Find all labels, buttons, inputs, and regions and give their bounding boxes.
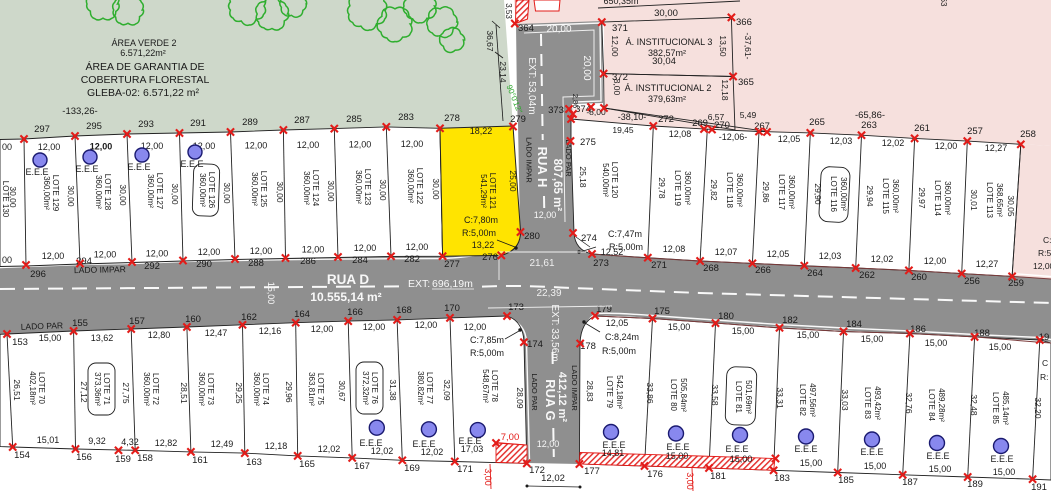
svg-text:541,29m²: 541,29m² xyxy=(479,174,488,208)
svg-text:489,28m²: 489,28m² xyxy=(937,388,946,422)
svg-text:291: 291 xyxy=(190,118,206,129)
svg-text:30,00: 30,00 xyxy=(654,8,678,19)
svg-text:284: 284 xyxy=(352,255,368,266)
svg-text:167: 167 xyxy=(354,461,370,472)
svg-text:12,00: 12,00 xyxy=(537,439,560,449)
svg-text:15,00: 15,00 xyxy=(929,464,952,474)
svg-text:LOTE 74: LOTE 74 xyxy=(261,373,270,406)
svg-text:12,00: 12,00 xyxy=(924,256,947,266)
svg-text:263: 263 xyxy=(861,120,877,131)
svg-text:3,53: 3,53 xyxy=(504,3,513,19)
svg-text:LOTE 126: LOTE 126 xyxy=(207,172,216,209)
svg-text:28,83: 28,83 xyxy=(585,380,595,402)
svg-text:12,18: 12,18 xyxy=(265,441,288,451)
svg-text:30,04: 30,04 xyxy=(652,56,676,67)
svg-text:181: 181 xyxy=(710,471,726,482)
svg-text:12,05: 12,05 xyxy=(767,249,790,259)
svg-text:365: 365 xyxy=(738,77,754,88)
svg-text:29,97: 29,97 xyxy=(917,187,927,209)
svg-text:12,03: 12,03 xyxy=(819,251,842,261)
svg-text:36,67: 36,67 xyxy=(485,30,495,52)
svg-text:277: 277 xyxy=(444,259,460,270)
svg-text:373: 373 xyxy=(548,105,564,116)
svg-text:182: 182 xyxy=(782,315,798,326)
svg-text:9,32: 9,32 xyxy=(88,436,106,446)
svg-text:373,36m²: 373,36m² xyxy=(93,372,102,406)
svg-text:ÁREA VERDE 2: ÁREA VERDE 2 xyxy=(111,38,176,48)
svg-text:296: 296 xyxy=(30,269,46,280)
svg-text:12,00: 12,00 xyxy=(354,243,377,253)
svg-text:E.E.E: E.E.E xyxy=(926,451,949,461)
svg-text:EXT: 53,04m: EXT: 53,04m xyxy=(526,57,537,114)
svg-text:LOTE 77: LOTE 77 xyxy=(425,372,434,405)
svg-text:28,51: 28,51 xyxy=(179,382,189,404)
svg-text:169: 169 xyxy=(404,463,420,474)
svg-text:156: 156 xyxy=(76,452,92,463)
svg-text:180: 180 xyxy=(718,311,734,322)
svg-text:E.E.E: E.E.E xyxy=(990,454,1013,464)
svg-text:30,00: 30,00 xyxy=(66,185,76,207)
svg-text:360,00m²: 360,00m² xyxy=(787,175,796,209)
svg-text:187: 187 xyxy=(902,477,918,488)
svg-text:379,63m²: 379,63m² xyxy=(648,94,686,104)
svg-text:R:5,00m: R:5,00m xyxy=(609,242,643,252)
svg-text:32,76: 32,76 xyxy=(904,392,914,414)
svg-text:29,94: 29,94 xyxy=(865,185,875,207)
svg-text:12,05: 12,05 xyxy=(606,318,629,328)
svg-text:293: 293 xyxy=(138,119,154,130)
svg-text:15,00: 15,00 xyxy=(797,330,820,340)
svg-text:505,84m²: 505,84m² xyxy=(679,378,688,412)
svg-text:32,09: 32,09 xyxy=(442,379,452,401)
svg-text:LOTE 73: LOTE 73 xyxy=(206,373,215,406)
svg-text:LOTE 75: LOTE 75 xyxy=(316,373,325,406)
svg-text:LOTE 118: LOTE 118 xyxy=(725,172,734,208)
svg-text:288: 288 xyxy=(248,258,264,269)
svg-text:360,00m²: 360,00m² xyxy=(735,173,744,207)
svg-text:R:: R: xyxy=(1040,372,1049,382)
svg-text:542,18m²: 542,18m² xyxy=(615,375,624,409)
svg-text:485,14m²: 485,14m² xyxy=(1001,391,1010,425)
svg-text:LOTE 81: LOTE 81 xyxy=(734,381,743,414)
svg-text:29,86: 29,86 xyxy=(761,181,771,203)
svg-text:364: 364 xyxy=(518,23,534,34)
svg-text:12,16: 12,16 xyxy=(259,326,282,336)
svg-text:15,00: 15,00 xyxy=(989,342,1012,352)
svg-text:360,00m²: 360,00m² xyxy=(250,172,259,206)
svg-text:LOTE 129: LOTE 129 xyxy=(51,175,60,212)
svg-text:R:5,00m: R:5,00m xyxy=(462,228,496,238)
svg-text:363,81m²: 363,81m² xyxy=(307,372,316,406)
svg-text:15,00: 15,00 xyxy=(39,333,62,343)
svg-text:280: 280 xyxy=(524,231,540,242)
svg-text:12,00: 12,00 xyxy=(415,320,438,330)
svg-text:LADO IMPAR: LADO IMPAR xyxy=(525,137,534,183)
svg-text:12,00: 12,00 xyxy=(146,248,169,258)
svg-text:E.E.E: E.E.E xyxy=(602,440,625,450)
svg-text:168: 168 xyxy=(396,305,412,316)
svg-text:12,00: 12,00 xyxy=(534,210,557,220)
svg-text:501,69m²: 501,69m² xyxy=(744,380,753,414)
svg-text:290: 290 xyxy=(196,259,212,270)
svg-text:160: 160 xyxy=(185,314,201,325)
svg-text:15,00: 15,00 xyxy=(993,467,1016,477)
svg-text:E.E.E: E.E.E xyxy=(127,162,150,172)
svg-text:258: 258 xyxy=(1020,129,1036,140)
svg-text:12,00: 12,00 xyxy=(406,242,429,252)
svg-text:29,90: 29,90 xyxy=(813,183,823,205)
svg-text:30,01: 30,01 xyxy=(969,189,979,211)
svg-text:12,27: 12,27 xyxy=(985,143,1008,153)
svg-text:256: 256 xyxy=(964,276,980,287)
svg-text:E.E.E: E.E.E xyxy=(458,436,481,446)
svg-text:R:5,00m: R:5,00m xyxy=(470,348,504,358)
svg-text:289: 289 xyxy=(242,117,258,128)
svg-text:268: 268 xyxy=(703,263,719,274)
svg-text:12,00: 12,00 xyxy=(38,142,61,152)
svg-text:25,18: 25,18 xyxy=(578,166,588,188)
svg-text:12,00: 12,00 xyxy=(250,246,273,256)
svg-text:279: 279 xyxy=(510,114,526,125)
svg-text:LOTE 80: LOTE 80 xyxy=(669,379,678,412)
svg-text:368,65m²: 368,65m² xyxy=(995,183,1004,217)
svg-text:LOTE 117: LOTE 117 xyxy=(777,174,786,210)
svg-text:292: 292 xyxy=(144,261,160,272)
svg-text:33,31: 33,31 xyxy=(775,387,785,409)
svg-text:158: 158 xyxy=(137,453,153,464)
svg-text:15,00: 15,00 xyxy=(266,282,276,305)
svg-text:E.E.E: E.E.E xyxy=(180,159,203,169)
svg-text:27,12: 27,12 xyxy=(79,381,89,403)
svg-text:272: 272 xyxy=(658,114,674,125)
svg-text:12,49: 12,49 xyxy=(211,439,234,449)
svg-text:-38,10-: -38,10- xyxy=(618,112,647,122)
svg-text:287: 287 xyxy=(294,115,310,126)
svg-text:170: 170 xyxy=(444,303,460,314)
svg-text:174: 174 xyxy=(527,339,543,350)
svg-text:166: 166 xyxy=(347,307,363,318)
svg-text:RUA G: RUA G xyxy=(543,379,558,420)
svg-text:5,49: 5,49 xyxy=(740,110,757,120)
svg-text:LOTE 72: LOTE 72 xyxy=(151,373,160,406)
svg-text:LOTE 70: LOTE 70 xyxy=(37,372,46,405)
svg-text:LOTE 115: LOTE 115 xyxy=(881,178,890,214)
svg-text:LOTE 119: LOTE 119 xyxy=(673,170,682,206)
svg-text:LOTE 114: LOTE 114 xyxy=(933,180,942,216)
svg-text:30,00: 30,00 xyxy=(431,178,441,200)
svg-text:360,00m²: 360,00m² xyxy=(142,372,151,406)
svg-text:C: C xyxy=(1042,358,1048,368)
svg-text:15,00: 15,00 xyxy=(668,322,691,332)
svg-text:30,00: 30,00 xyxy=(275,181,285,203)
svg-text:COBERTURA FLORESTAL: COBERTURA FLORESTAL xyxy=(81,74,210,86)
svg-text:29,78: 29,78 xyxy=(657,177,667,199)
svg-text:282: 282 xyxy=(404,254,420,265)
svg-text:31,38: 31,38 xyxy=(388,379,398,401)
svg-text:LOTE 78: LOTE 78 xyxy=(490,370,499,403)
svg-text:285: 285 xyxy=(346,114,362,125)
svg-text:30,00: 30,00 xyxy=(378,179,388,201)
svg-text:29,82: 29,82 xyxy=(709,179,719,201)
svg-text:12,00: 12,00 xyxy=(94,250,117,260)
svg-text:276: 276 xyxy=(482,252,498,263)
svg-text:LOTE 113: LOTE 113 xyxy=(985,182,994,218)
svg-text:270: 270 xyxy=(714,120,730,131)
svg-text:E.E.E: E.E.E xyxy=(860,447,883,457)
svg-text:LOTE 83: LOTE 83 xyxy=(863,387,872,420)
svg-text:12,00: 12,00 xyxy=(198,247,221,257)
svg-text:LOTE 71: LOTE 71 xyxy=(102,373,111,406)
svg-text:00: 00 xyxy=(2,142,12,152)
svg-text:189: 189 xyxy=(967,479,983,490)
svg-text:E.E.E: E.E.E xyxy=(725,444,748,454)
svg-text:20,00: 20,00 xyxy=(581,55,592,80)
svg-text:19,45: 19,45 xyxy=(612,125,634,135)
svg-text:E.E.E: E.E.E xyxy=(25,167,48,177)
svg-text:15,00: 15,00 xyxy=(666,451,689,461)
svg-text:360,00m²: 360,00m² xyxy=(943,181,952,215)
svg-text:7,00: 7,00 xyxy=(501,432,520,443)
svg-text:12,82: 12,82 xyxy=(155,438,178,448)
svg-text:LOTE 121: LOTE 121 xyxy=(488,173,497,210)
svg-text:3,00: 3,00 xyxy=(483,468,493,486)
svg-text:Á. INSTITUCIONAL 2: Á. INSTITUCIONAL 2 xyxy=(625,83,712,93)
svg-text:360,00m²: 360,00m² xyxy=(683,171,692,205)
svg-text:12,05: 12,05 xyxy=(778,134,801,144)
svg-text:E.E.E: E.E.E xyxy=(666,442,689,452)
svg-text:12,00: 12,00 xyxy=(311,324,334,334)
svg-text:12,00: 12,00 xyxy=(935,141,958,151)
svg-text:12,00: 12,00 xyxy=(401,139,424,149)
svg-text:LOTE 124: LOTE 124 xyxy=(311,170,320,207)
svg-text:30,05: 30,05 xyxy=(1006,195,1016,217)
svg-text:12,00: 12,00 xyxy=(297,140,320,150)
svg-text:154: 154 xyxy=(14,450,30,461)
svg-text:12,27: 12,27 xyxy=(976,259,999,269)
svg-text:-37,61-: -37,61- xyxy=(743,33,753,60)
svg-text:540,00m²: 540,00m² xyxy=(601,163,610,197)
svg-text:13,62: 13,62 xyxy=(91,333,114,343)
svg-text:E.E.E: E.E.E xyxy=(412,439,435,449)
svg-text:LOTE 122: LOTE 122 xyxy=(415,168,424,205)
svg-text:12,18: 12,18 xyxy=(720,79,730,101)
svg-text:63: 63 xyxy=(939,0,948,7)
svg-text:LOTE 85: LOTE 85 xyxy=(991,392,1000,425)
svg-text:12,00: 12,00 xyxy=(349,140,372,150)
svg-text:3,00: 3,00 xyxy=(685,472,695,490)
svg-text:265: 265 xyxy=(809,117,825,128)
svg-text:C:7,85m: C:7,85m xyxy=(470,335,504,345)
svg-text:LOTE 79: LOTE 79 xyxy=(605,376,614,409)
svg-text:R:5: R:5 xyxy=(1038,248,1051,258)
svg-text:807,65 m²: 807,65 m² xyxy=(551,159,563,212)
svg-text:12,07: 12,07 xyxy=(715,247,738,257)
svg-text:LOTE 127: LOTE 127 xyxy=(155,173,164,210)
svg-text:-12,06-: -12,06- xyxy=(719,132,748,142)
svg-text:32,20: 32,20 xyxy=(1033,397,1043,419)
svg-text:497,56m²: 497,56m² xyxy=(808,383,817,417)
svg-text:360,00m²: 360,00m² xyxy=(406,169,415,203)
svg-text:402,18m²: 402,18m² xyxy=(28,371,37,405)
svg-text:262: 262 xyxy=(859,270,875,281)
svg-text:360,00m²: 360,00m² xyxy=(252,372,261,406)
svg-text:13,22: 13,22 xyxy=(472,240,495,250)
svg-text:165: 165 xyxy=(299,459,315,470)
svg-text:ÁREA DE GARANTIA DE: ÁREA DE GARANTIA DE xyxy=(85,60,204,73)
svg-text:650,35m: 650,35m xyxy=(603,0,638,6)
svg-text:12,00: 12,00 xyxy=(1033,261,1051,271)
svg-text:412,12 m²: 412,12 m² xyxy=(556,372,568,422)
svg-text:12,00: 12,00 xyxy=(245,140,268,150)
svg-text:12,00: 12,00 xyxy=(363,322,386,332)
svg-text:12,08: 12,08 xyxy=(669,129,692,139)
svg-text:LADO PAR: LADO PAR xyxy=(564,139,573,177)
svg-text:RUA H: RUA H xyxy=(535,147,550,188)
svg-text:360,00m²: 360,00m² xyxy=(197,372,206,406)
svg-text:171: 171 xyxy=(457,464,473,475)
svg-text:33,86: 33,86 xyxy=(645,382,655,404)
svg-text:R:5,00m: R:5,00m xyxy=(602,346,636,356)
svg-text:15,01: 15,01 xyxy=(37,435,60,445)
svg-text:00: 00 xyxy=(2,255,12,265)
svg-text:264: 264 xyxy=(807,268,823,279)
svg-text:30,00: 30,00 xyxy=(222,182,232,204)
svg-text:15,00: 15,00 xyxy=(730,454,753,464)
svg-text:360,00m²: 360,00m² xyxy=(94,175,103,209)
svg-text:15,00: 15,00 xyxy=(925,338,948,348)
svg-text:176: 176 xyxy=(647,469,663,480)
svg-text:LOTE 125: LOTE 125 xyxy=(259,171,268,208)
svg-text:548,67m²: 548,67m² xyxy=(481,369,490,403)
svg-text:271: 271 xyxy=(651,260,667,271)
svg-text:177: 177 xyxy=(584,466,600,477)
svg-text:21,61: 21,61 xyxy=(529,258,554,269)
svg-text:360,00m²: 360,00m² xyxy=(839,177,848,211)
svg-text:15,00: 15,00 xyxy=(864,461,887,471)
svg-text:12,47: 12,47 xyxy=(205,328,228,338)
svg-text:172: 172 xyxy=(529,465,545,476)
svg-text:15,00: 15,00 xyxy=(800,458,823,468)
svg-text:6.571,22m²: 6.571,22m² xyxy=(120,48,166,58)
svg-text:28,09: 28,09 xyxy=(515,387,525,409)
svg-text:360,00m²: 360,00m² xyxy=(354,170,363,204)
svg-text:LOTE 82: LOTE 82 xyxy=(798,384,807,417)
svg-text:EXT:: EXT: xyxy=(408,278,430,290)
svg-text:26,51: 26,51 xyxy=(12,379,22,401)
svg-text:164: 164 xyxy=(294,309,310,320)
svg-text:C:8,24m: C:8,24m xyxy=(605,332,639,342)
svg-text:184: 184 xyxy=(846,319,862,330)
svg-text:157: 157 xyxy=(129,316,145,327)
svg-text:15,00: 15,00 xyxy=(732,326,755,336)
svg-text:33,58: 33,58 xyxy=(710,384,720,406)
svg-text:360,00m²: 360,00m² xyxy=(302,171,311,205)
svg-text:12,02: 12,02 xyxy=(871,254,894,264)
svg-text:12,03: 12,03 xyxy=(830,136,853,146)
svg-text:372: 372 xyxy=(612,72,628,83)
svg-text:LOTE 120: LOTE 120 xyxy=(610,162,619,199)
svg-text:260: 260 xyxy=(911,272,927,283)
svg-text:4,32: 4,32 xyxy=(121,437,139,447)
svg-text:C:7,47m: C:7,47m xyxy=(608,229,642,239)
svg-text:LOTE 128: LOTE 128 xyxy=(103,174,112,211)
svg-text:696,19m: 696,19m xyxy=(432,278,473,290)
svg-text:372,32m²: 372,32m² xyxy=(361,371,370,405)
svg-text:LOTE 76: LOTE 76 xyxy=(370,372,379,405)
svg-text:12,00: 12,00 xyxy=(302,245,325,255)
svg-text:E.E.E: E.E.E xyxy=(75,164,98,174)
svg-text:Á. INSTITUCIONAL 3: Á. INSTITUCIONAL 3 xyxy=(626,37,713,47)
svg-text:29,25: 29,25 xyxy=(234,382,244,404)
svg-text:12,80: 12,80 xyxy=(148,330,171,340)
svg-text:30,00: 30,00 xyxy=(170,183,180,205)
svg-text:30,00: 30,00 xyxy=(118,184,128,206)
svg-text:27,75: 27,75 xyxy=(121,382,131,404)
svg-text:GLEBA-02: 6.571,22 m²: GLEBA-02: 6.571,22 m² xyxy=(87,87,200,99)
svg-text:380,82m²: 380,82m² xyxy=(416,371,425,405)
svg-text:163: 163 xyxy=(246,457,262,468)
svg-text:275: 275 xyxy=(580,137,596,148)
svg-text:261: 261 xyxy=(914,123,930,134)
svg-text:366: 366 xyxy=(736,17,752,28)
svg-text:12,00: 12,00 xyxy=(42,251,65,261)
svg-text:29,96: 29,96 xyxy=(284,381,294,403)
svg-text:493,42m²: 493,42m² xyxy=(873,386,882,420)
svg-text:33,03: 33,03 xyxy=(840,389,850,411)
svg-text:162: 162 xyxy=(241,312,257,323)
svg-text:LADO IMPAR: LADO IMPAR xyxy=(570,365,579,411)
svg-text:257: 257 xyxy=(967,126,983,137)
svg-text:C:7,80m: C:7,80m xyxy=(464,215,498,225)
svg-text:10.555,14 m²: 10.555,14 m² xyxy=(310,290,381,304)
svg-text:12,02: 12,02 xyxy=(882,138,905,148)
svg-text:20,00: 20,00 xyxy=(546,24,571,35)
svg-text:15,00: 15,00 xyxy=(861,334,884,344)
svg-text:12,08: 12,08 xyxy=(663,244,686,254)
svg-text:12,00: 12,00 xyxy=(464,322,487,332)
svg-text:E.E.E: E.E.E xyxy=(359,438,382,448)
svg-text:RUA D: RUA D xyxy=(327,272,369,287)
svg-text:30,00: 30,00 xyxy=(326,180,336,202)
svg-text:153: 153 xyxy=(12,337,28,348)
svg-text:191: 191 xyxy=(1031,482,1047,493)
svg-text:LOTE 116: LOTE 116 xyxy=(829,176,838,212)
svg-text:32,48: 32,48 xyxy=(969,394,979,416)
svg-text:161: 161 xyxy=(192,455,208,466)
svg-text:155: 155 xyxy=(72,318,88,329)
svg-text:18,22: 18,22 xyxy=(470,126,493,136)
svg-text:LOTE 84: LOTE 84 xyxy=(927,389,936,422)
svg-text:C:: C: xyxy=(1043,235,1051,245)
svg-text:360,00m²: 360,00m² xyxy=(146,174,155,208)
svg-text:266: 266 xyxy=(755,265,771,276)
svg-text:283: 283 xyxy=(398,112,414,123)
svg-text:22,39: 22,39 xyxy=(536,288,561,299)
svg-text:LOTE 123: LOTE 123 xyxy=(363,169,372,206)
svg-text:273: 273 xyxy=(593,258,609,269)
svg-text:23,14: 23,14 xyxy=(498,61,508,83)
svg-text:LOTE 130: LOTE 130 xyxy=(1,181,10,218)
svg-text:297: 297 xyxy=(34,124,50,135)
svg-text:LADO PAR: LADO PAR xyxy=(530,373,539,411)
svg-text:360,00m²: 360,00m² xyxy=(42,176,51,210)
svg-text:30,67: 30,67 xyxy=(337,380,347,402)
svg-text:25,00: 25,00 xyxy=(508,170,518,192)
svg-text:E.E.E: E.E.E xyxy=(794,444,817,454)
svg-text:295: 295 xyxy=(86,121,102,132)
svg-text:183: 183 xyxy=(774,473,790,484)
svg-text:12,00: 12,00 xyxy=(610,35,620,57)
